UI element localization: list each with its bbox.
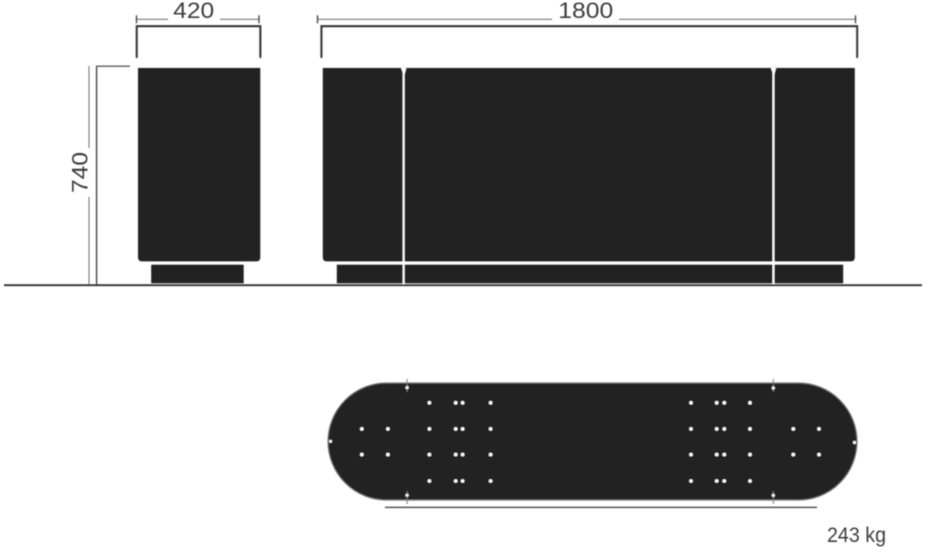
svg-text:420: 420	[173, 0, 214, 23]
svg-text:243 kg: 243 kg	[827, 524, 886, 547]
svg-text:740: 740	[68, 152, 93, 193]
svg-text:1800: 1800	[558, 0, 613, 23]
